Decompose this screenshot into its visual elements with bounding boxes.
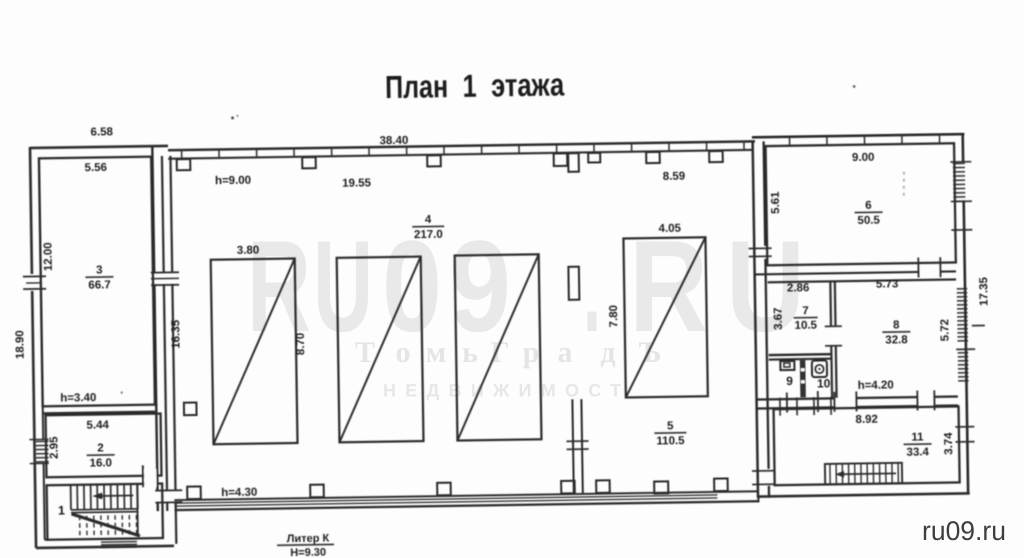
svg-text:18.90: 18.90 [14, 330, 26, 359]
svg-text:5.73: 5.73 [876, 278, 899, 290]
svg-text:м: м [426, 336, 446, 369]
svg-text:5.72: 5.72 [939, 319, 951, 342]
svg-text:38.40: 38.40 [379, 135, 408, 147]
svg-text:17.35: 17.35 [978, 276, 990, 306]
svg-text:7.80: 7.80 [608, 305, 620, 328]
svg-text:h=9.00: h=9.00 [215, 175, 251, 188]
svg-text:16.0: 16.0 [90, 457, 113, 469]
svg-text:3.74: 3.74 [943, 432, 955, 455]
svg-text:h=3.40: h=3.40 [60, 392, 96, 405]
svg-text:4: 4 [425, 214, 432, 226]
svg-text:8.92: 8.92 [855, 414, 878, 426]
svg-text:8.70: 8.70 [295, 333, 307, 356]
svg-text:ru09.ru: ru09.ru [922, 516, 1006, 546]
svg-text:4.05: 4.05 [659, 223, 682, 235]
svg-text:этажа: этажа [491, 66, 565, 103]
svg-text:Литер К: Литер К [287, 532, 330, 545]
svg-text:3.67: 3.67 [773, 307, 785, 330]
svg-text:5.61: 5.61 [770, 191, 782, 214]
svg-text:1: 1 [58, 504, 65, 518]
svg-text:9: 9 [786, 374, 793, 388]
svg-text:217.0: 217.0 [414, 229, 443, 241]
svg-text:16.35: 16.35 [170, 319, 182, 349]
svg-text:Н=9.30: Н=9.30 [290, 547, 326, 558]
svg-text:3.80: 3.80 [237, 245, 260, 257]
svg-text:1: 1 [462, 68, 477, 104]
svg-text:а: а [558, 336, 573, 369]
svg-text:5.44: 5.44 [86, 419, 109, 431]
svg-text:3: 3 [96, 264, 103, 276]
svg-text:66.7: 66.7 [88, 279, 111, 291]
svg-text:6: 6 [865, 200, 872, 212]
svg-text:2: 2 [97, 442, 104, 454]
svg-text:7: 7 [802, 305, 809, 317]
svg-text:5: 5 [667, 420, 674, 432]
svg-text:2.95: 2.95 [48, 436, 60, 459]
svg-text:р: р [523, 336, 540, 369]
svg-text:19.55: 19.55 [342, 177, 372, 189]
svg-text:h=4.30: h=4.30 [221, 487, 257, 500]
svg-text:о: о [396, 336, 411, 369]
svg-text:11: 11 [911, 431, 924, 443]
svg-text:110.5: 110.5 [656, 435, 685, 447]
svg-text:32.8: 32.8 [885, 334, 908, 346]
svg-text:9.00: 9.00 [852, 152, 875, 164]
svg-text:10: 10 [817, 376, 831, 390]
svg-text:8: 8 [893, 319, 900, 331]
svg-text:Т: Т [355, 336, 375, 369]
svg-text:ь: ь [462, 336, 478, 369]
svg-text:6.58: 6.58 [90, 126, 113, 138]
svg-text:5.56: 5.56 [85, 162, 108, 174]
svg-text:50.5: 50.5 [857, 214, 880, 226]
svg-text:12.00: 12.00 [42, 242, 54, 271]
svg-text:2.86: 2.86 [787, 282, 810, 294]
svg-text:h=4.20: h=4.20 [858, 379, 894, 392]
svg-text:10.5: 10.5 [794, 320, 817, 332]
svg-text:.: . [583, 213, 601, 359]
svg-text:План: План [385, 68, 449, 105]
svg-text:8.59: 8.59 [663, 171, 686, 183]
svg-text:д: д [600, 336, 615, 369]
svg-text:33.4: 33.4 [906, 446, 929, 458]
